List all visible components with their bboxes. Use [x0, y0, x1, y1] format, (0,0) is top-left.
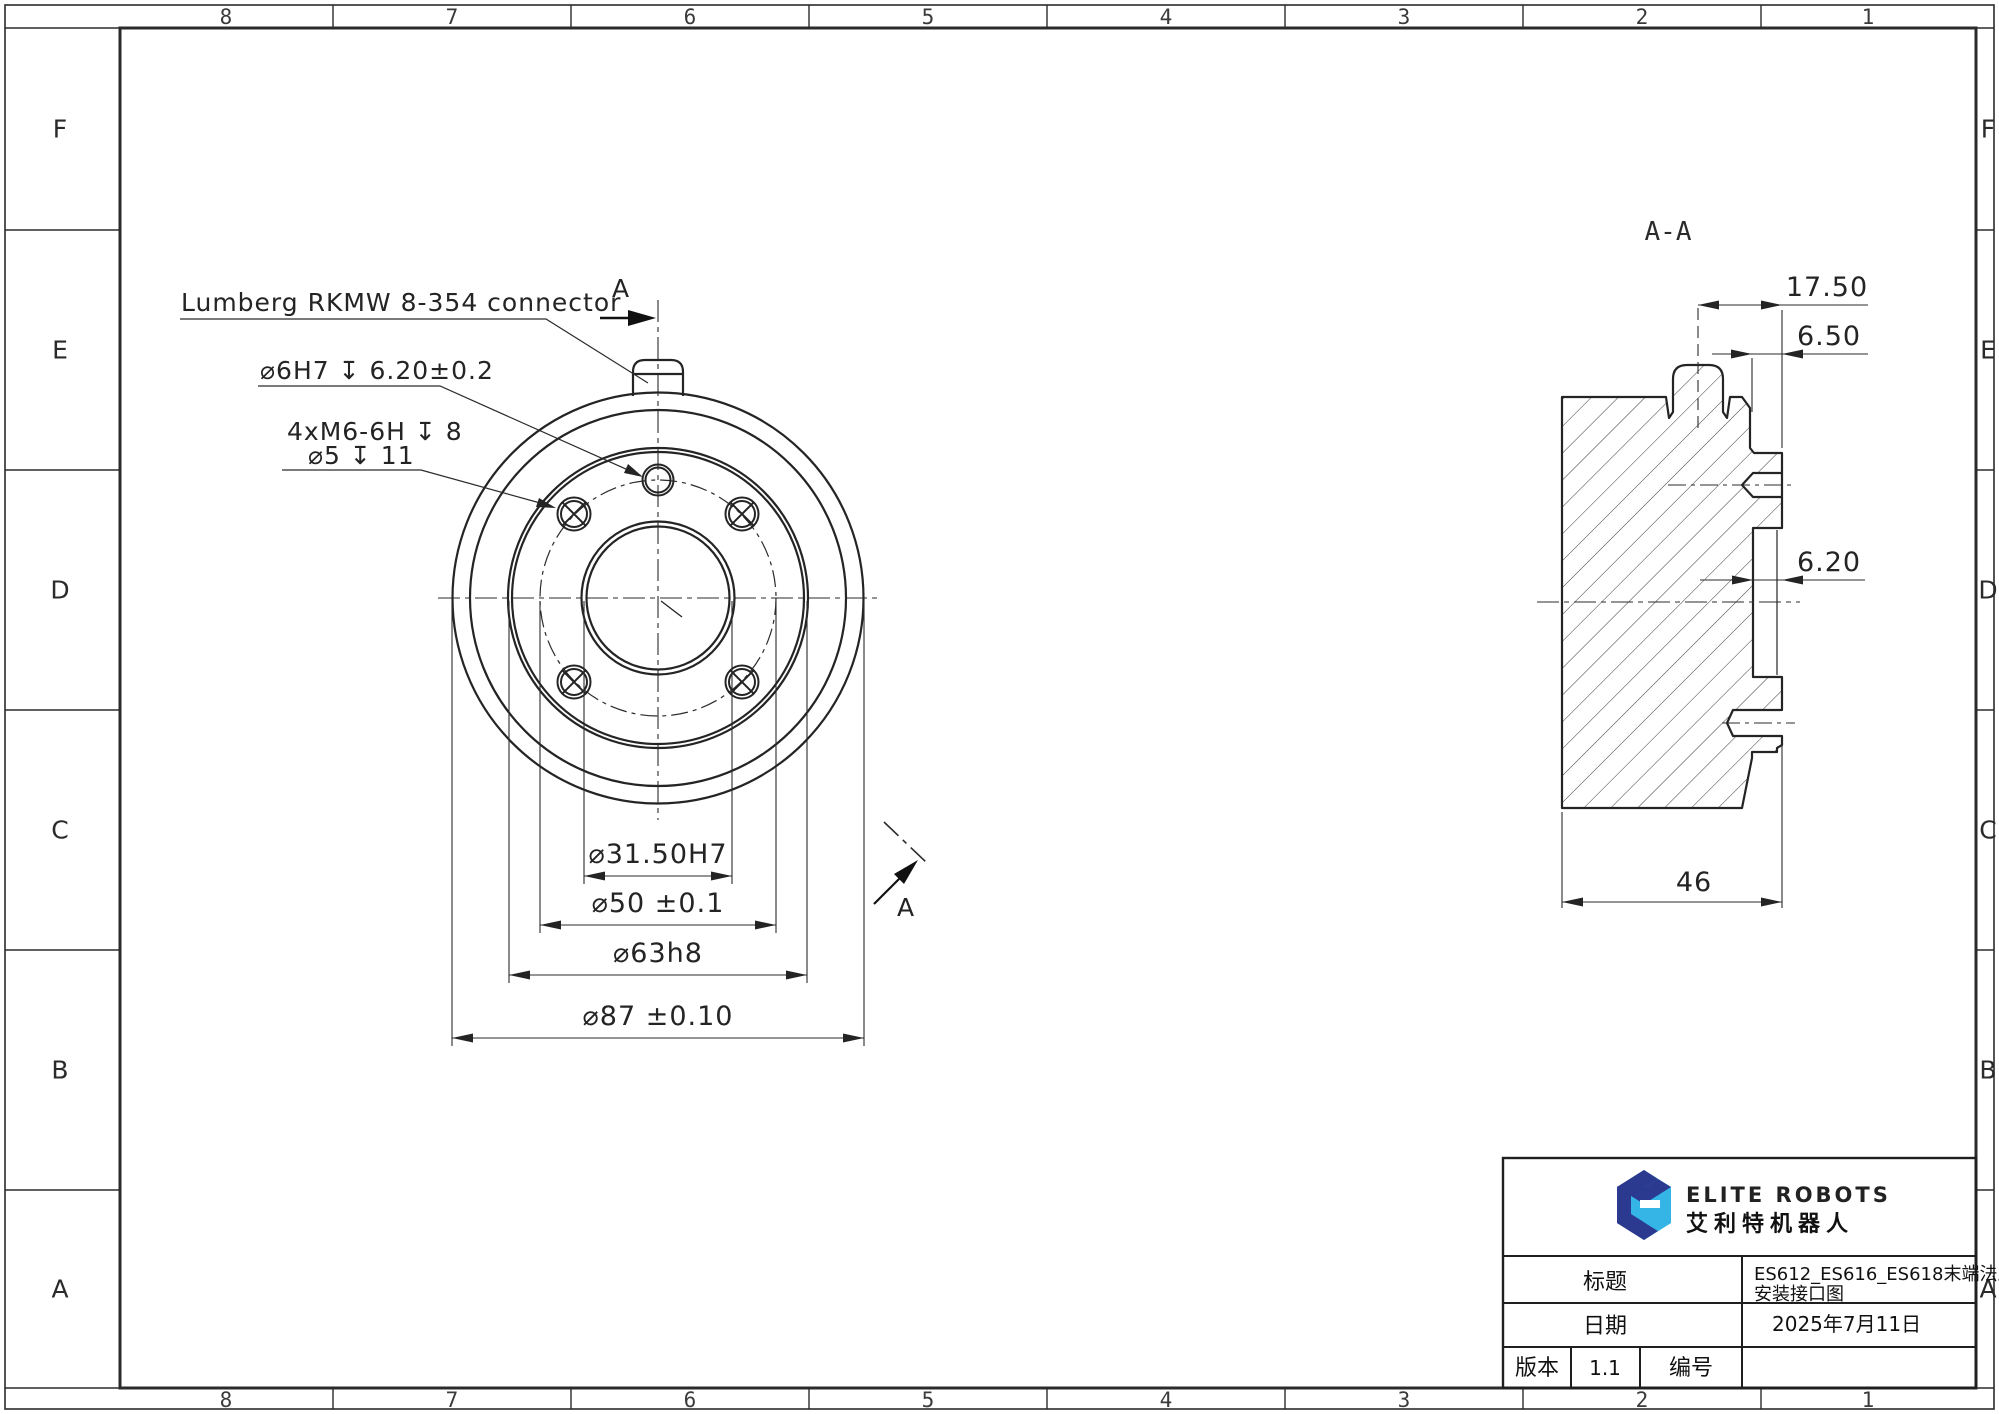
row-label: C — [51, 816, 68, 845]
col-label: 4 — [1160, 5, 1173, 29]
section-letter-top: A — [612, 274, 630, 303]
col-label: 1 — [1862, 5, 1875, 29]
dim-recess-depth: 6.20 — [1797, 547, 1861, 578]
row-label: E — [1980, 336, 1996, 365]
date-value: 2025年7月11日 — [1772, 1312, 1921, 1336]
front-view: Lumberg RKMW 8-354 connector ⌀6H7 ↧ 6.20… — [180, 274, 928, 1046]
col-label: 2 — [1636, 5, 1649, 29]
number-label: 编号 — [1669, 1356, 1713, 1381]
dim-connector-offset: 17.50 — [1786, 272, 1868, 303]
col-label: 7 — [446, 5, 459, 29]
col-label: 6 — [684, 5, 697, 29]
section-letter-bottom: A — [897, 893, 915, 922]
col-label: 8 — [220, 1388, 233, 1412]
dim-bore: ⌀31.50H7 — [588, 839, 727, 870]
centerlines — [438, 300, 878, 820]
bolt-hole — [726, 498, 759, 531]
version-value: 1.1 — [1589, 1356, 1621, 1380]
dowel-hole-label: ⌀6H7 ↧ 6.20±0.2 — [260, 356, 494, 385]
col-label: 2 — [1636, 1388, 1649, 1412]
section-arrow-top — [628, 310, 656, 326]
col-label: 7 — [446, 1388, 459, 1412]
bolt-hole — [558, 498, 591, 531]
extension-lines — [452, 601, 864, 1046]
brand-name-en: ELITE ROBOTS — [1686, 1183, 1891, 1207]
version-label: 版本 — [1515, 1356, 1559, 1381]
bolt-hole — [558, 666, 591, 699]
title-label: 标题 — [1583, 1270, 1627, 1295]
column-ticks — [333, 5, 1761, 1409]
bolt-hole — [726, 666, 759, 699]
dim-connector-width: 6.50 — [1797, 321, 1861, 352]
section-body — [1562, 365, 1782, 808]
col-label: 3 — [1398, 5, 1411, 29]
section-line-diagonal — [884, 822, 928, 864]
center-tick — [661, 601, 682, 617]
col-label: 5 — [922, 5, 935, 29]
section-view-title: A-A — [1645, 217, 1692, 247]
row-label: C — [1979, 816, 1996, 845]
title-value-line1: ES612_ES616_ES618末端法兰 — [1754, 1264, 1999, 1285]
date-label: 日期 — [1583, 1314, 1627, 1339]
logo-notch — [1640, 1200, 1660, 1208]
row-label: F — [53, 115, 67, 144]
col-label: 8 — [220, 5, 233, 29]
row-label: B — [51, 1056, 68, 1085]
dim-thickness: 46 — [1676, 867, 1712, 898]
row-label: E — [52, 336, 68, 365]
col-label: 3 — [1398, 1388, 1411, 1412]
dim-bolt-circle: ⌀50 ±0.1 — [592, 888, 725, 919]
title-block: ELITE ROBOTS 艾利特机器人 标题 ES612_ES616_ES618… — [1503, 1158, 1999, 1388]
dim-boss: ⌀63h8 — [613, 938, 703, 969]
col-label: 4 — [1160, 1388, 1173, 1412]
row-label: D — [50, 576, 69, 605]
connector-label: Lumberg RKMW 8-354 connector — [181, 288, 621, 317]
row-label: B — [1979, 1056, 1996, 1085]
row-label: F — [1981, 115, 1995, 144]
row-label: D — [1978, 576, 1997, 605]
title-value-line2: 安装接口图 — [1754, 1284, 1844, 1305]
front-dimensions: ⌀31.50H7 ⌀50 ±0.1 ⌀63h8 ⌀87 ±0.10 — [452, 601, 864, 1046]
col-label: 1 — [1862, 1388, 1875, 1412]
elite-robots-logo — [1617, 1170, 1671, 1240]
col-label: 6 — [684, 1388, 697, 1412]
leader-arrow — [624, 464, 643, 477]
row-label: A — [51, 1275, 68, 1304]
bolt-hole-label-2: ⌀5 ↧ 11 — [308, 441, 415, 470]
brand-name-cn: 艾利特机器人 — [1686, 1211, 1854, 1237]
col-label: 5 — [922, 1388, 935, 1412]
dim-outer: ⌀87 ±0.10 — [583, 1001, 734, 1032]
section-view: A-A — [1537, 217, 1868, 908]
drawing-sheet: 8 7 6 5 4 3 2 1 8 7 6 5 4 3 2 1 F E D C … — [0, 0, 1999, 1414]
